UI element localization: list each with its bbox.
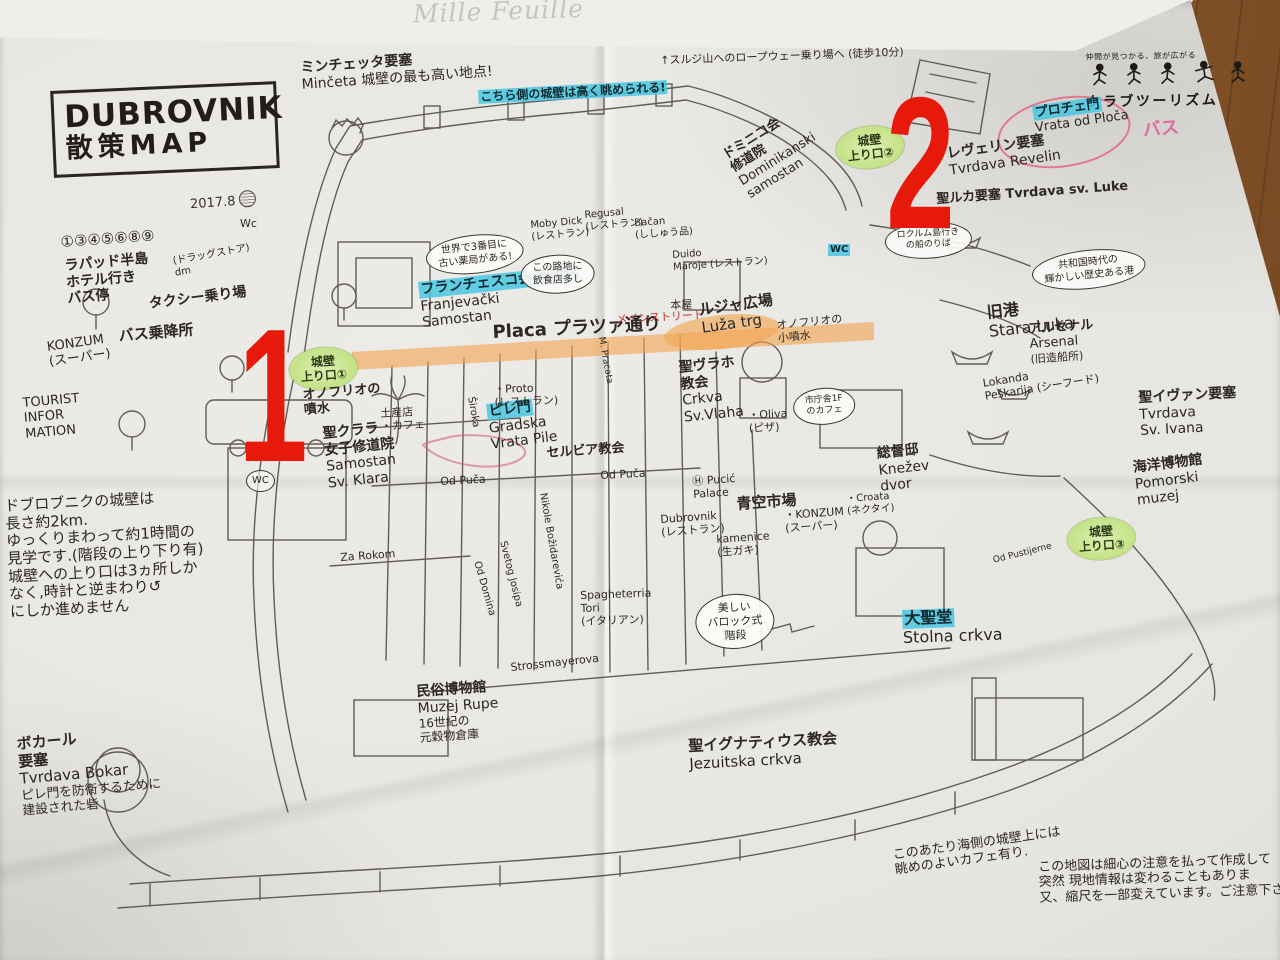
od-puca-street-east: Od Puča bbox=[600, 468, 646, 483]
baroque-stairs-bubble-line-2: バロック式 bbox=[707, 613, 763, 630]
bacan-embroidery-label: Bačan(ししゅう品) bbox=[634, 214, 693, 242]
st-clara-convent-label: 聖クララ女子修道院SamostanSv. Klara bbox=[322, 419, 399, 492]
moby-dick-label: Moby Dick(レストラン) bbox=[530, 215, 590, 244]
city-hall-cafe-bubble-line-2: のカフェ bbox=[805, 405, 844, 419]
kamenice-oyster-label: kamenice(生ガキ) bbox=[716, 530, 771, 560]
rector-palace-label: 総督邸Kneževdvor bbox=[876, 441, 932, 496]
step-marker-1: 1 bbox=[238, 320, 308, 472]
oliva-pizza-label: ・Oliva(ピザ) bbox=[748, 408, 788, 436]
map-title-box: DUBROVNIK 散策MAP bbox=[50, 81, 280, 178]
city-wall-info-note: ドブロブニクの城壁は長さ約2km.ゆっくりまわって約1時間の見学です.(階段の上… bbox=[4, 488, 207, 622]
od-puca-street-west-line-1: Od Puča bbox=[440, 474, 486, 489]
tourist-information-label: TOURISTINFORMATION bbox=[22, 391, 83, 442]
proto-restaurant-label: ・Proto(レストラン) bbox=[494, 382, 558, 410]
spaghetteria-tori-label-line-3: (イタリアン) bbox=[581, 613, 653, 628]
map-disclaimer-note: この地図は細心の注意を払って作成して突然 現地情報は変わることもありま又、縮尺を… bbox=[1038, 851, 1280, 906]
map-title-line1: DUBROVNIK bbox=[64, 94, 265, 134]
wall-entrance-3-badge-line-2: 上り口③ bbox=[1078, 537, 1125, 554]
club-tourism-dancers-icon bbox=[1086, 60, 1256, 87]
pucic-palace-label: Ⓗ PucićPalace bbox=[692, 473, 737, 502]
cathedral-label-line-2: Stolna crkva bbox=[903, 625, 1003, 647]
baroque-stairs-bubble-line-3: 階段 bbox=[708, 627, 764, 644]
lapad-bus-stop-label: ラパッド半島ホテル行きバス停 bbox=[64, 251, 152, 308]
bookstore-label: 本屋 bbox=[670, 299, 693, 313]
bookstore-label-line-1: 本屋 bbox=[670, 299, 693, 313]
bus-handwritten-note-line-1: バス bbox=[1142, 117, 1180, 141]
wc-note-minceta: Wc bbox=[240, 218, 257, 231]
alley-restaurants-bubble-line-2: 飲食店多し bbox=[533, 273, 583, 287]
signature-stamp-icon bbox=[238, 190, 256, 208]
od-puca-street-west: Od Puča bbox=[440, 474, 486, 489]
rupe-museum-label: 民俗博物館Muzej Rupe16世紀の元穀物倉庫 bbox=[416, 678, 501, 745]
oliva-pizza-label-line-2: (ピザ) bbox=[749, 421, 789, 436]
croata-tie-label: ・Croata(ネクタイ) bbox=[846, 491, 895, 518]
map-photo: Mille Feuille bbox=[0, 0, 1280, 960]
konzum-east-label: ・KONZUM(スーパー) bbox=[784, 506, 845, 536]
cathedral-label: 大聖堂Stolna crkva bbox=[902, 607, 1003, 648]
alley-restaurants-bubble-line-1: この路地に bbox=[532, 261, 582, 275]
wc-note-ploce-line-1: WC bbox=[828, 244, 850, 256]
st-blaise-church-label: 聖ヴラホ教会CrkvaSv.Vlaha bbox=[678, 354, 745, 426]
od-puca-street-east-line-1: Od Puča bbox=[600, 468, 646, 483]
st-ivan-fortress-label: 聖イヴァン要塞TvrdavaSv. Ivana bbox=[1138, 385, 1238, 440]
step-marker-2: 2 bbox=[886, 88, 955, 238]
bus-handwritten-note: バス bbox=[1142, 117, 1180, 141]
wc-note-minceta-line-1: Wc bbox=[240, 218, 257, 231]
spaghetteria-tori-label: SpagheterriaTori(イタリアン) bbox=[580, 588, 652, 629]
wc-note-ploce: WC bbox=[828, 244, 850, 256]
proto-restaurant-label-line-2: (レストラン) bbox=[494, 395, 558, 410]
bokar-fortress-label: ボカール要塞Tvrdava Bokarピレ門を防衛するために建設された砦 bbox=[16, 724, 163, 819]
maritime-museum-label: 海洋博物館Pomorskimuzej bbox=[1132, 451, 1208, 509]
